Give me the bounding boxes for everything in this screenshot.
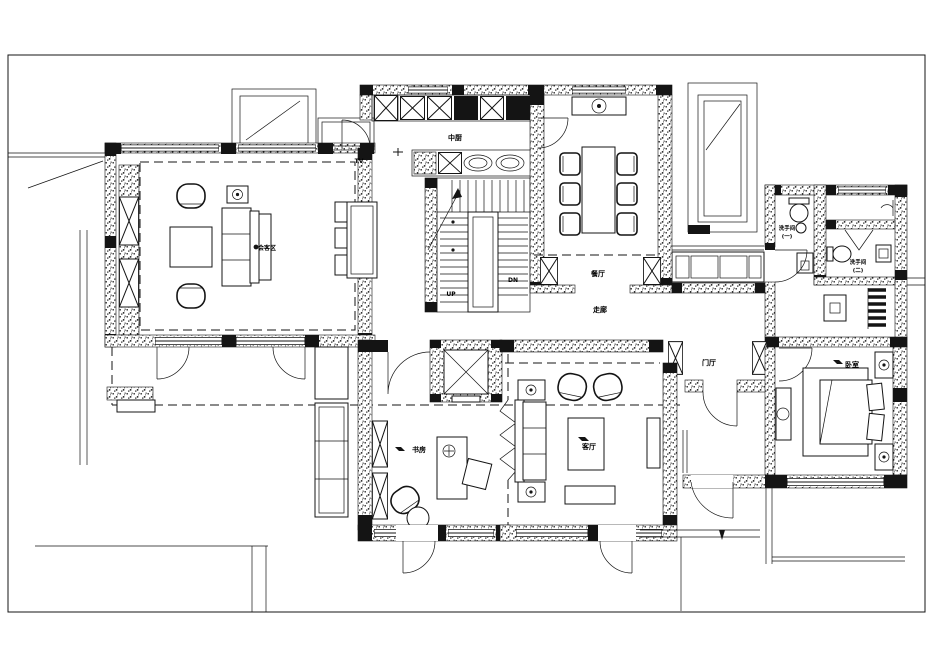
floor-plan-sheet: 会客区 TV 中厨 <box>0 0 946 660</box>
foyer-door <box>703 392 737 426</box>
terrace-step <box>107 387 155 412</box>
step-arrow <box>719 530 725 540</box>
bed <box>803 368 884 456</box>
dresser <box>776 388 791 440</box>
pedestal-sink <box>797 253 813 273</box>
desk <box>437 437 467 499</box>
tv-bench <box>565 486 615 504</box>
family-terrace-door <box>600 541 632 573</box>
label-dn: DN <box>508 277 518 284</box>
armchair <box>556 371 589 402</box>
svg-text:(一): (一) <box>782 234 793 240</box>
upper-left-bay <box>232 89 316 152</box>
nightstand <box>875 352 893 378</box>
dining-table <box>582 147 615 233</box>
door-jamb <box>393 148 403 156</box>
label-corridor: 走廊 <box>593 305 607 314</box>
floor-plan-drawing: 会客区 TV 中厨 <box>0 0 946 660</box>
sofa <box>515 380 546 502</box>
hall-console-cabinet <box>672 246 764 282</box>
terrace-door-right <box>273 347 305 379</box>
study-terrace-door <box>403 541 435 573</box>
label-kitchen: 中厨 <box>448 133 462 142</box>
corridor: 走廊 <box>593 283 765 314</box>
label-washroom2: 洗手间 <box>850 258 867 266</box>
balcony <box>688 83 757 234</box>
label-tv: TV <box>355 158 364 165</box>
bathroom-block: 洗手间 (一) 洗手间 (二) <box>765 185 907 347</box>
staircase: UP DN <box>425 178 530 312</box>
bench-cabinet <box>315 347 348 517</box>
armchair <box>177 284 205 308</box>
label-washroom1: 洗手间 <box>779 224 796 232</box>
radiator <box>868 290 886 325</box>
flower-table <box>227 186 248 203</box>
washroom-1: 洗手间 (一) <box>775 198 813 282</box>
utility-room <box>824 288 886 329</box>
label-marker <box>395 447 405 451</box>
tv-cabinet <box>335 202 377 278</box>
wall-cabinet <box>647 418 660 468</box>
entry-closet <box>374 96 397 121</box>
armchair <box>177 184 205 208</box>
foyer: 门厅 <box>668 342 767 426</box>
nightstand <box>875 444 893 470</box>
family-room: 客厅 <box>500 340 677 573</box>
svg-text:(二): (二) <box>853 267 864 274</box>
study-door <box>388 352 430 394</box>
label-reception: 会客区 <box>258 244 276 252</box>
shower-door <box>845 230 873 250</box>
study: 书房 <box>315 340 516 573</box>
coffee-table <box>170 227 212 267</box>
label-marker <box>833 360 843 364</box>
reception-room: 会客区 TV <box>105 143 377 379</box>
stair-direction-arrow <box>452 188 462 199</box>
sideboard <box>572 97 626 115</box>
armchair <box>591 371 624 402</box>
label-foyer: 门厅 <box>702 358 716 367</box>
bidet <box>796 223 806 233</box>
toilet <box>827 246 851 262</box>
label-study: 书房 <box>412 445 426 454</box>
dining-room: 餐厅 <box>530 95 672 293</box>
terrace-door-left <box>157 347 189 379</box>
cooktop-counter <box>412 150 532 176</box>
powder-sink <box>881 200 893 216</box>
label-bedroom: 卧室 <box>845 360 859 369</box>
toilet <box>789 198 809 222</box>
bedroom: 卧室 <box>683 347 907 518</box>
terrace-canopy-lines <box>107 347 680 412</box>
label-dining: 餐厅 <box>590 269 605 278</box>
label-living: 客厅 <box>581 442 596 451</box>
sink <box>876 245 891 262</box>
folding-partition <box>500 400 516 480</box>
elevator <box>430 340 502 402</box>
washroom-2: 洗手间 (二) <box>827 230 891 274</box>
label-up: UP <box>446 291 456 298</box>
